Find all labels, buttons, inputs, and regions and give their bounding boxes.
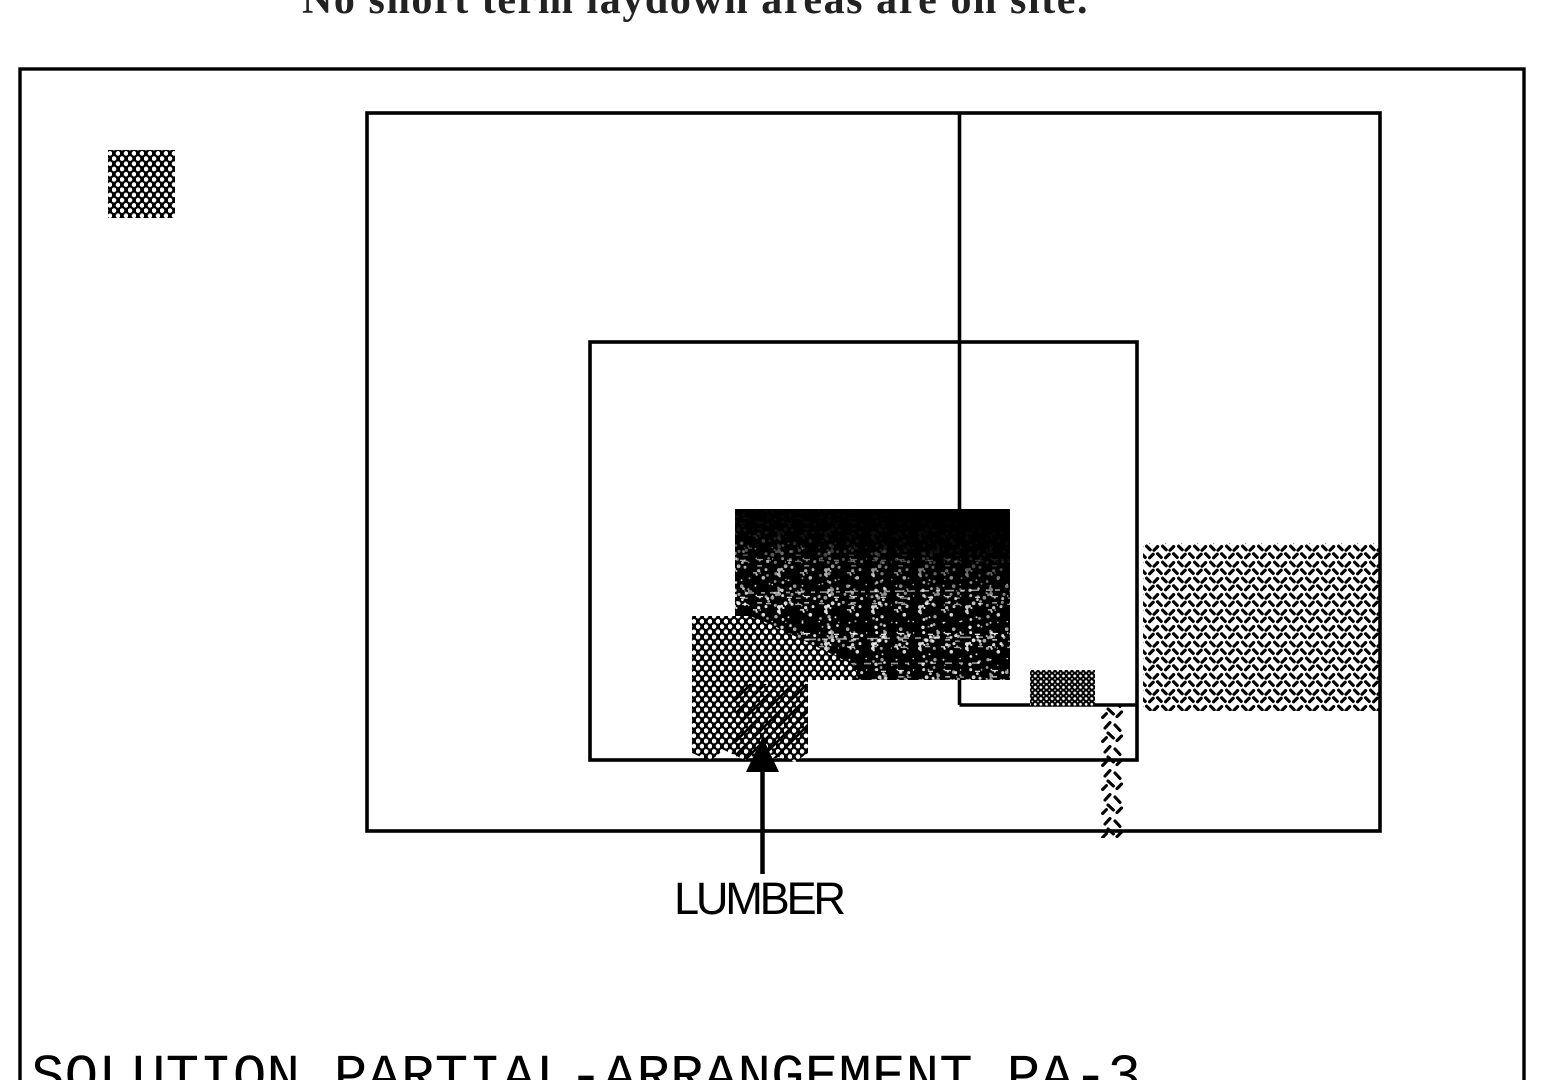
svg-text:LUMBER: LUMBER <box>674 873 846 924</box>
svg-text:SOLUTION PARTIAL-ARRANGEMENT P: SOLUTION PARTIAL-ARRANGEMENT PA-3 <box>31 1047 1141 1080</box>
svg-text:No short term laydown areas ar: No short term laydown areas are on site. <box>302 0 1088 23</box>
